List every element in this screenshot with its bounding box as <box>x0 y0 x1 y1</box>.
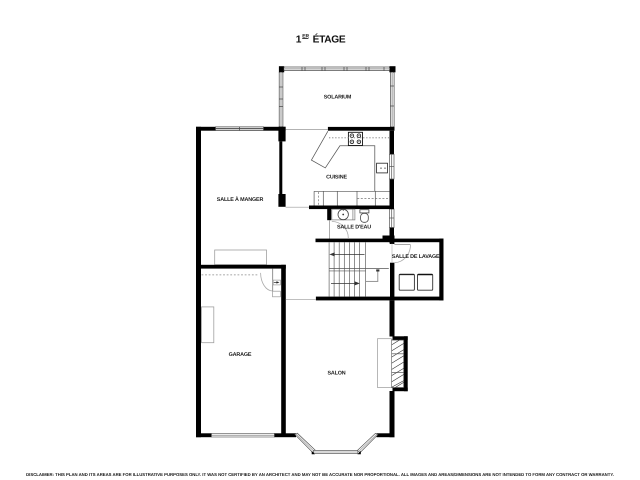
svg-text:SALON: SALON <box>327 370 345 376</box>
svg-text:ÉTAGE: ÉTAGE <box>313 32 346 45</box>
svg-text:DISCLAIMER: THIS PLAN AND ITS: DISCLAIMER: THIS PLAN AND ITS AREAS ARE … <box>26 472 614 477</box>
svg-text:SALLE DE LAVAGE: SALLE DE LAVAGE <box>392 254 440 260</box>
svg-text:1: 1 <box>296 34 302 45</box>
svg-text:SALLE À MANGER: SALLE À MANGER <box>217 196 264 203</box>
svg-text:SOLARIUM: SOLARIUM <box>324 95 352 101</box>
svg-text:SALLE D'EAU: SALLE D'EAU <box>337 225 371 231</box>
svg-text:CUISINE: CUISINE <box>326 175 347 181</box>
svg-text:GARAGE: GARAGE <box>229 352 252 358</box>
